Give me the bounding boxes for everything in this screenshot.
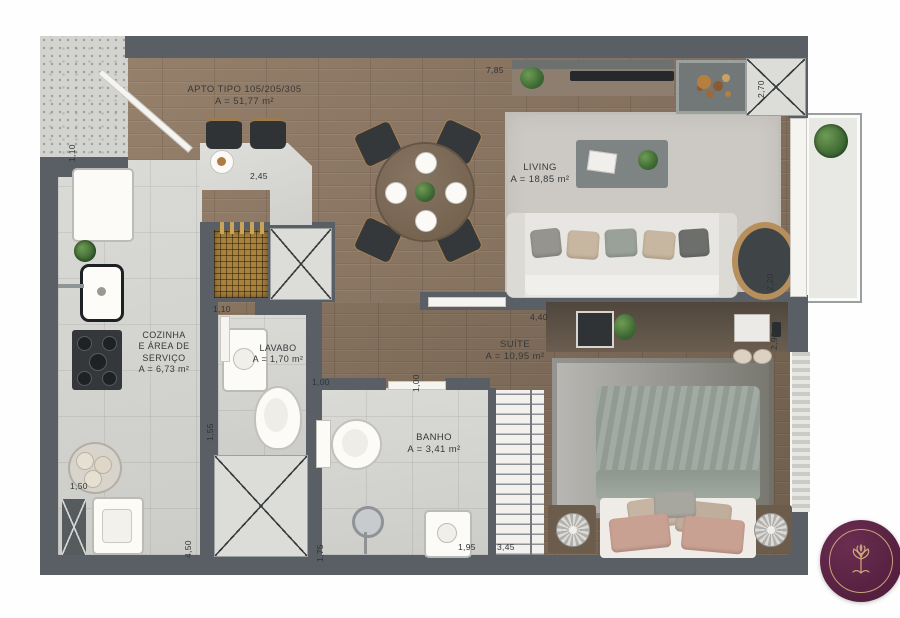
dim-banho-door-b: 1,00 (412, 362, 421, 392)
place-setting (415, 152, 437, 174)
brand-logo (820, 520, 900, 602)
sink-drain (97, 287, 106, 296)
tank-basin (102, 509, 132, 543)
firewood-nook (676, 60, 748, 114)
suite-name: SUÍTE (475, 339, 555, 351)
sofa-armrest-left (507, 213, 525, 297)
coffee-table-book (587, 150, 618, 174)
dim-living-right: 2,20 (766, 255, 775, 291)
wall-banho-top-right (445, 378, 490, 390)
drying-rack (62, 499, 86, 555)
place-setting (445, 182, 467, 204)
centerpiece-plant-icon (415, 182, 435, 202)
cozinha-name2: E ÁREA DE (118, 341, 210, 352)
banho-toilet-tank (316, 420, 331, 468)
kitchen-sink (80, 264, 124, 322)
unit-area: A = 51,77 m² (162, 96, 327, 108)
wall-top (125, 36, 808, 58)
nightstand-lamp (754, 513, 788, 547)
toilet-bowl (342, 429, 368, 457)
unit-label: APTO TIPO 105/205/305 A = 51,77 m² (162, 84, 327, 108)
shower-arm (364, 532, 367, 554)
stove-burner (102, 371, 117, 386)
wine-rack (214, 230, 268, 298)
sofa-backrest (525, 275, 719, 295)
unit-title: APTO TIPO 105/205/305 (162, 84, 327, 96)
living-label: LIVING A = 18,85 m² (494, 162, 586, 186)
dim-entry: 1,10 (68, 128, 77, 162)
living-area: A = 18,85 m² (494, 174, 586, 186)
cozinha-name3: SERVIÇO (118, 353, 210, 364)
console-plant-icon (520, 67, 544, 89)
dim-suite-right: 2,90 (770, 312, 779, 350)
stove-burner (77, 336, 92, 351)
cozinha-area: A = 6,73 m² (118, 364, 210, 375)
dim-hall: 4,40 (530, 313, 548, 322)
tv (570, 71, 674, 81)
place-setting (385, 182, 407, 204)
banho-name: BANHO (394, 432, 474, 444)
tv-console (512, 60, 674, 96)
suite-sideboard-desk (546, 302, 788, 352)
wall-banho-top-left (322, 378, 386, 390)
cozinha-label: COZINHA E ÁREA DE SERVIÇO A = 6,73 m² (118, 330, 210, 375)
shaft-bottom (214, 455, 308, 557)
suite-sliding-door (428, 297, 506, 307)
dim-top-width: 7,85 (486, 66, 504, 75)
sofa-pillow (566, 230, 600, 260)
nightstand-lamp (556, 513, 590, 547)
dining-table (377, 144, 473, 240)
lavabo-area: A = 1,70 m² (238, 354, 318, 365)
suite-area: A = 10,95 m² (475, 351, 555, 363)
wall-right-mid (788, 295, 808, 352)
kitchen-faucet (58, 284, 84, 288)
banho-area: A = 3,41 m² (394, 444, 474, 456)
bed-pillow (608, 513, 671, 553)
wall-bottom (40, 555, 808, 575)
suite-window-curtain (790, 352, 810, 512)
closet-shelf-area (494, 390, 544, 555)
living-name: LIVING (494, 162, 586, 174)
dim-lavabo-door: 1,10 (213, 305, 231, 314)
counter-food (217, 157, 226, 166)
sofa-pillow (642, 230, 676, 261)
dim-banho-door-a: 1,00 (312, 378, 330, 387)
tree-emblem-icon (841, 541, 881, 581)
shaft-top-right (746, 58, 806, 116)
stove-cooktop (72, 330, 122, 390)
wall-lavabo-top (255, 302, 308, 315)
dim-banho-length: 1,95 (458, 543, 476, 552)
kitchen-plant-icon (74, 240, 96, 262)
towel-roll (76, 452, 94, 470)
fridge (72, 168, 134, 242)
lavabo-toilet (254, 386, 302, 450)
shower-head-icon (352, 506, 384, 538)
sofa-pillow (530, 228, 563, 259)
counter-plate (210, 150, 234, 174)
cozinha-name: COZINHA (118, 330, 210, 341)
shaft-center (270, 228, 332, 300)
dim-lavabo-depth: 1,55 (206, 405, 215, 441)
balcony-glass-door (790, 118, 807, 297)
counter-stool (206, 118, 242, 149)
banho-label: BANHO A = 3,41 m² (394, 432, 474, 456)
laptop (734, 314, 770, 342)
dim-closet-length: 3,45 (497, 543, 515, 552)
coffee-table-plant-icon (638, 150, 658, 170)
firewood-logs-icon (697, 75, 711, 89)
banho-basin (437, 523, 457, 543)
floorplan-canvas: APTO TIPO 105/205/305 A = 51,77 m² LIVIN… (0, 0, 900, 618)
dim-counter: 2,45 (250, 172, 268, 181)
stove-burner (102, 336, 117, 351)
place-setting (415, 210, 437, 232)
sofa (506, 212, 738, 298)
bed-pillow (681, 515, 746, 554)
balcony-plant-icon (814, 124, 848, 158)
dim-kitchen-length: 4,50 (184, 522, 193, 558)
dim-fire-nook: 2,70 (757, 62, 766, 98)
coffee-table (576, 140, 668, 188)
laundry-tank (92, 497, 144, 555)
lavabo-door-leaf (220, 316, 230, 362)
counter-stool (250, 118, 286, 149)
banho-toilet (331, 419, 382, 470)
dim-service: 1,50 (70, 482, 88, 491)
entry-hall-terrazzo (40, 36, 128, 157)
suite-plant-icon (614, 314, 636, 340)
dim-banho-width: 1,75 (316, 528, 325, 562)
wine-bottles-icon (220, 222, 224, 234)
suite-tv (576, 311, 614, 348)
sofa-pillow (604, 228, 637, 258)
suite-label: SUÍTE A = 10,95 m² (475, 339, 555, 363)
lavabo-name: LAVABO (238, 343, 318, 354)
toilet-bowl (264, 398, 288, 432)
bed (596, 386, 760, 558)
sofa-pillow (678, 228, 710, 258)
stove-burner (89, 353, 107, 371)
wall-closet-left (488, 388, 496, 555)
wall-left (40, 157, 58, 575)
lavabo-label: LAVABO A = 1,70 m² (238, 343, 318, 366)
stove-burner (77, 371, 92, 386)
